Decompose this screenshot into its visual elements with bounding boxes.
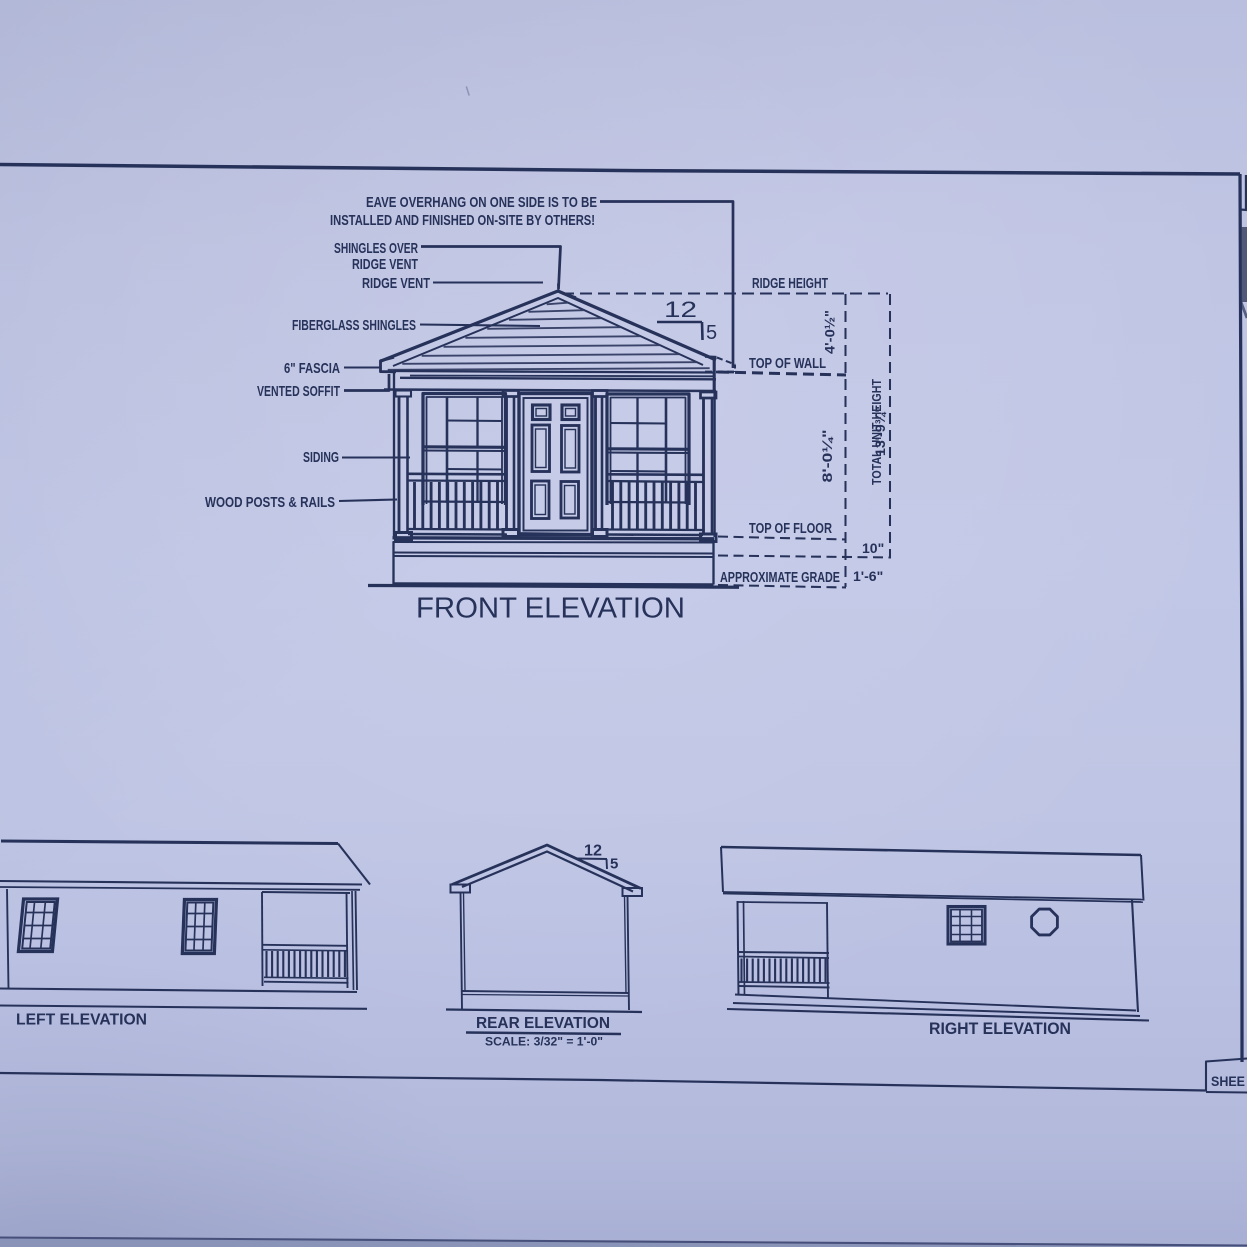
svg-text:1'-6": 1'-6" [853,568,883,584]
svg-text:5: 5 [610,856,618,873]
svg-text:RIGHT ELEVATION: RIGHT ELEVATION [929,1020,1071,1038]
svg-text:8'-0¼": 8'-0¼" [820,430,835,483]
svg-text:VENTED SOFFIT: VENTED SOFFIT [257,383,340,400]
svg-text:SHEE: SHEE [1211,1073,1245,1089]
svg-text:10": 10" [862,540,884,556]
svg-text:EAVE OVERHANG ON ONE SIDE IS T: EAVE OVERHANG ON ONE SIDE IS TO BE [366,194,597,211]
svg-text:RIDGE HEIGHT: RIDGE HEIGHT [752,276,828,292]
svg-text:TOP OF FLOOR: TOP OF FLOOR [749,521,832,537]
svg-text:12: 12 [584,843,602,860]
svg-text:6" FASCIA: 6" FASCIA [284,360,340,377]
svg-text:SCALE: 3/32" = 1'-0": SCALE: 3/32" = 1'-0" [485,1035,603,1049]
svg-text:SIDING: SIDING [303,449,339,466]
svg-text:12: 12 [664,297,697,322]
svg-text:LEFT ELEVATION: LEFT ELEVATION [16,1012,147,1029]
svg-text:TOP OF WALL: TOP OF WALL [749,356,826,372]
svg-text:5: 5 [706,322,717,344]
svg-text:4'-0½": 4'-0½" [823,310,838,354]
svg-text:RIDGE VENT: RIDGE VENT [352,256,418,273]
svg-text:INSTALLED AND FINISHED ON-SITE: INSTALLED AND FINISHED ON-SITE BY OTHERS… [330,212,595,229]
svg-text:SHINGLES OVER: SHINGLES OVER [334,240,418,257]
svg-text:REAR ELEVATION: REAR ELEVATION [476,1015,610,1032]
svg-text:FIBERGLASS SHINGLES: FIBERGLASS SHINGLES [292,317,416,334]
svg-text:FRONT ELEVATION: FRONT ELEVATION [416,593,685,625]
svg-text:WOOD POSTS & RAILS: WOOD POSTS & RAILS [205,494,335,511]
svg-text:RIDGE VENT: RIDGE VENT [362,275,430,292]
svg-text:APPROXIMATE GRADE: APPROXIMATE GRADE [720,570,840,586]
svg-text:13'-9¾": 13'-9¾" [873,406,888,456]
